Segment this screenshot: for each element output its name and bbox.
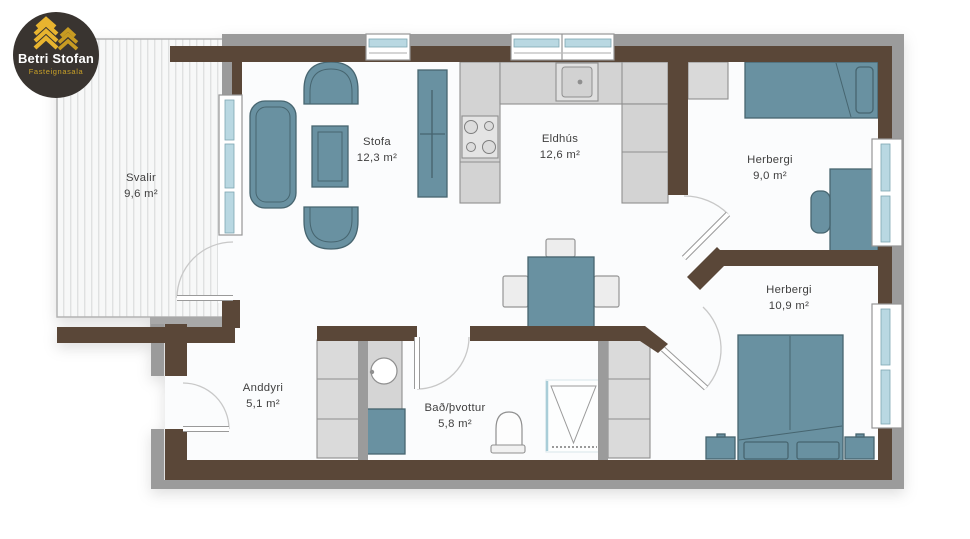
logo-subtitle: Fasteignasala [29, 67, 84, 76]
wall-bottom [165, 460, 890, 480]
window-livingroom [366, 34, 410, 60]
wall-entry-left [165, 429, 187, 462]
burner [483, 141, 496, 154]
room-area-svalir: 9,6 m² [124, 188, 158, 200]
room-area-herbergi1: 9,0 m² [753, 170, 787, 182]
room-label-anddyri: Anddyri [243, 382, 283, 394]
wall-left-outer [151, 429, 164, 480]
pillow [797, 442, 839, 459]
dining-chair [503, 276, 528, 307]
wall-bath-right [598, 336, 608, 460]
kitchen-counter-right [622, 104, 668, 203]
room-label-stofa: Stofa [363, 136, 391, 148]
dining-chair [594, 276, 619, 307]
bedroom1-wardrobe [688, 62, 728, 99]
wall-kitchen-bedroom1 [668, 62, 688, 195]
desk [830, 169, 878, 254]
room-area-stofa: 12,3 m² [357, 152, 397, 164]
floorplan-canvas: Svalir 9,6 m² Stofa 12,3 m² Eldhús 12,6 … [0, 0, 970, 539]
pillow [856, 67, 873, 113]
room-label-herbergi2: Herbergi [766, 284, 812, 296]
faucet-dot [370, 370, 374, 374]
coffee-table [312, 126, 348, 187]
room-label-svalir: Svalir [126, 172, 156, 184]
nightstand [706, 437, 735, 459]
wall-bath-left [358, 338, 368, 460]
bath-sink-icon [371, 358, 397, 384]
wall-balcony-rail [57, 327, 235, 343]
wall-entry-top [317, 326, 417, 341]
sofa [250, 101, 296, 208]
burner [485, 122, 494, 131]
washing-machine [367, 409, 405, 454]
window-kitchen [511, 34, 614, 60]
bedroom2-furniture [608, 335, 874, 461]
room-label-herbergi1: Herbergi [747, 154, 793, 166]
desk-chair [811, 191, 830, 233]
wall-balconyside-inner [232, 62, 242, 97]
window-bedroom1 [872, 139, 902, 246]
shower-icon [546, 380, 600, 452]
room-label-bad: Bað/þvottur [424, 402, 485, 414]
window-bedroom2 [872, 304, 902, 428]
floorplan-svg: Svalir 9,6 m² Stofa 12,3 m² Eldhús 12,6 … [0, 0, 970, 539]
wall-between-bedrooms [714, 250, 878, 266]
logo-title: Betri Stofan [18, 51, 94, 66]
kitchen-sink-icon [556, 63, 598, 101]
pillow [744, 442, 788, 459]
wall-balcony-stub [222, 300, 240, 328]
room-label-eldhus: Eldhús [542, 133, 578, 145]
nightstand [845, 437, 874, 459]
room-area-anddyri: 5,1 m² [246, 398, 280, 410]
armchair [304, 62, 358, 104]
entry-wardrobe [317, 340, 361, 458]
nightstand-knob [856, 434, 864, 437]
dining-chair [546, 239, 575, 257]
room-area-bad: 5,8 m² [438, 418, 472, 430]
floorplan: Svalir 9,6 m² Stofa 12,3 m² Eldhús 12,6 … [57, 34, 904, 489]
nightstand-knob [717, 434, 725, 437]
bedroom2-wardrobe [608, 340, 650, 458]
stove-icon [462, 116, 498, 158]
burner [467, 143, 476, 152]
window-balcony [219, 95, 242, 235]
room-area-eldhus: 12,6 m² [540, 149, 580, 161]
armchair [304, 207, 358, 249]
dining-table [528, 257, 594, 327]
wall-bottom-outer [151, 480, 904, 489]
logo: Betri Stofan Fasteignasala [13, 12, 99, 98]
burner [465, 121, 478, 134]
room-area-herbergi2: 10,9 m² [769, 300, 809, 312]
